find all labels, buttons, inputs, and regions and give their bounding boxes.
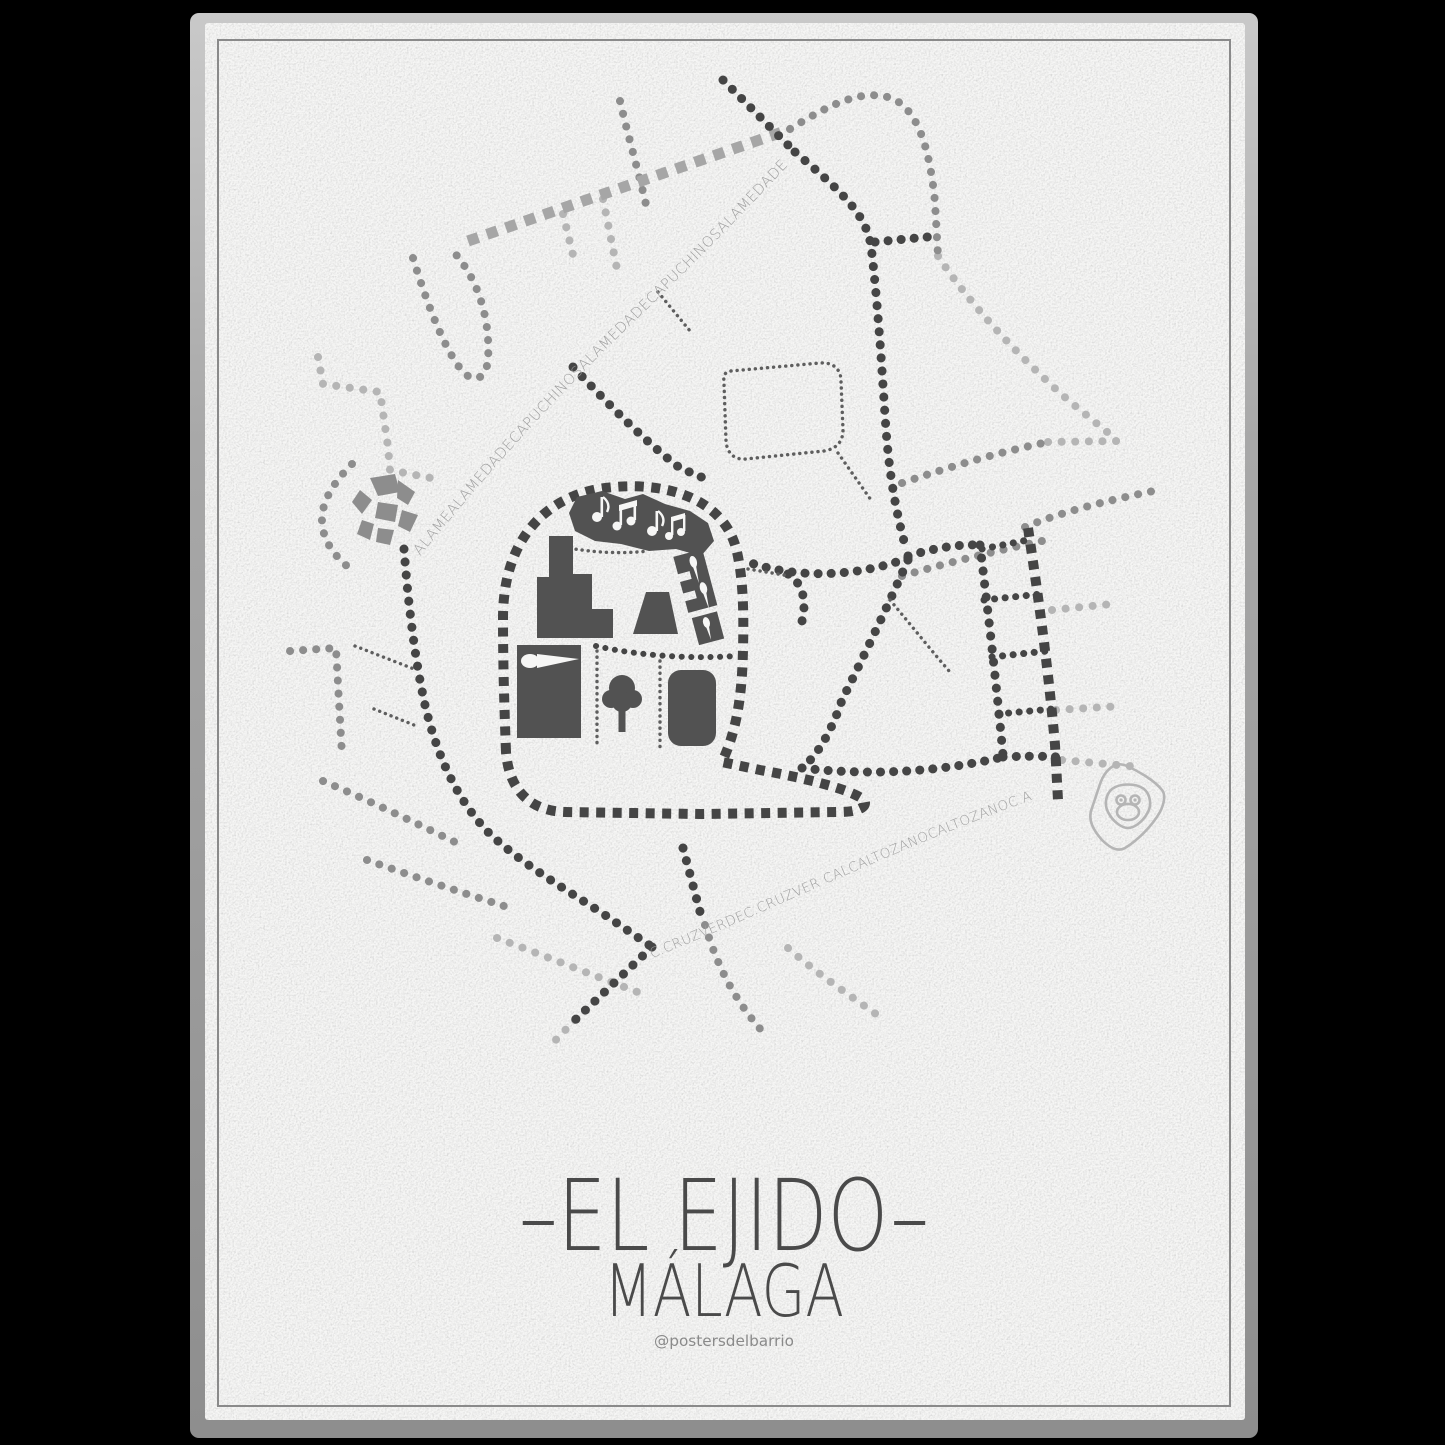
canvas: { "poster": { "title": "–EL EJIDO–", "su… bbox=[0, 0, 1445, 1445]
poster-mockup bbox=[190, 13, 1258, 1438]
poster-paper bbox=[205, 23, 1245, 1420]
